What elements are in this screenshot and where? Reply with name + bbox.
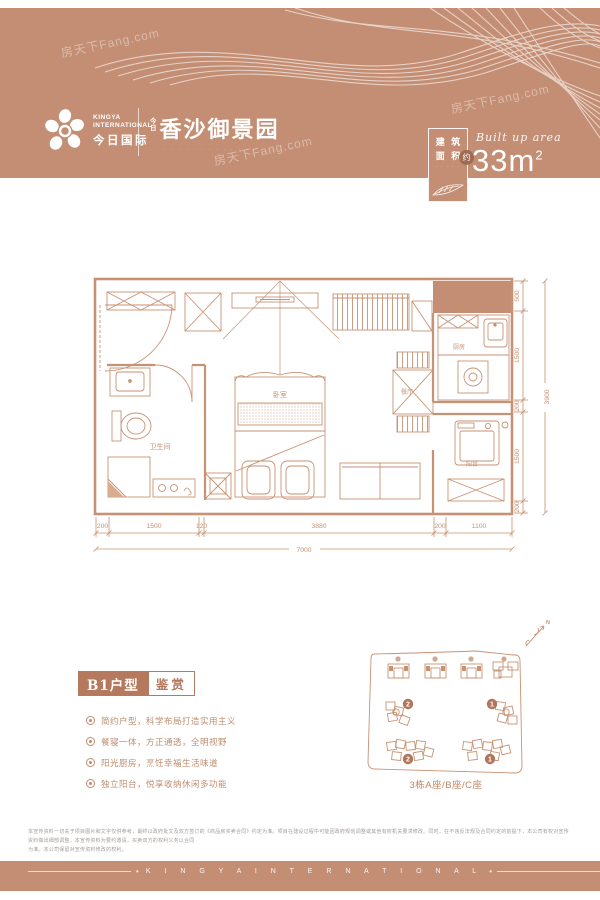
- footer-line-right: [497, 871, 600, 872]
- ceiling-lines: [223, 281, 339, 375]
- bathroom-walls: [107, 365, 205, 500]
- bullet-icon: [86, 716, 95, 725]
- chairs: [242, 461, 314, 499]
- site-buildings-top: [388, 656, 518, 678]
- feature-text: 独立阳台，悦享收纳休闲多功能: [101, 778, 227, 790]
- project-subtitle: · · · · · · · · · · · · · ·: [164, 147, 280, 152]
- ac-unit: [448, 479, 504, 501]
- dim-bottom-3: 120: [196, 523, 208, 530]
- siteplan-caption: 3栋A座/B座/C座: [409, 779, 482, 791]
- toilet-icon: [112, 411, 151, 441]
- north-arrow-icon: [526, 626, 544, 646]
- footer-band: • K I N G Y A I N T E R N A T I O N A L …: [0, 861, 600, 891]
- room-label-bedroom: 卧室: [273, 390, 287, 399]
- area-badge-dots: · · · · ·: [429, 164, 467, 169]
- feature-text: 阳光厨房，烹饪幸福生活味道: [101, 757, 218, 769]
- area-sup: 2: [535, 148, 543, 163]
- north-label: N: [546, 620, 550, 626]
- feature-item: 独立阳台，悦享收纳休闲多功能: [86, 773, 236, 794]
- feature-item: 餐寝一体，方正通透，全明视野: [86, 731, 236, 752]
- brand-name-cn: 今日国际: [93, 132, 152, 148]
- wardrobe: [333, 294, 432, 331]
- bullet-icon: [86, 737, 95, 746]
- building-badge-number: 1: [490, 702, 494, 709]
- flyer-page: KINGYA INTERNATIONAL 今日国际 今 日 香沙御景园 · · …: [0, 0, 600, 900]
- title-prefix-top: 今: [150, 118, 157, 125]
- entry-door: [100, 305, 172, 371]
- dim-bottom-5: 200: [434, 523, 446, 530]
- balcony-washer: [455, 421, 508, 465]
- footer-line-left: [28, 871, 131, 872]
- entry-closet: [107, 292, 221, 331]
- title-prefix-bottom: 日: [150, 125, 157, 132]
- feature-item: 阳光厨房，烹饪幸福生活味道: [86, 752, 236, 773]
- disclaimer-line1: 本宣传资料一切关于项目图片和文字仅供参考，最终以政府批文及双方签订的《商品房买卖…: [28, 828, 573, 846]
- feature-text: 简约户型，科学布局打造实用主义: [101, 715, 236, 727]
- bullet-icon: [86, 758, 95, 767]
- bullet-icon: [86, 779, 95, 788]
- building-badge-number: 2: [406, 757, 410, 764]
- building-badge-number: 2: [406, 702, 410, 709]
- unit-type-badge: B1户型 鉴赏: [78, 671, 195, 696]
- kitchen-walls: [433, 313, 512, 514]
- area-badge: 建 筑 面 积 · · · · · 约: [428, 128, 468, 202]
- bathroom-sink: [110, 368, 150, 396]
- feature-text: 餐寝一体，方正通透，全明视野: [101, 736, 227, 748]
- area-number: 33m: [472, 143, 535, 178]
- room-label-kitchen: 厨房: [453, 343, 465, 351]
- kitchen-counter: [438, 315, 509, 400]
- project-title: 香沙御景园: [160, 112, 280, 144]
- feature-item: 简约户型，科学布局打造实用主义: [86, 710, 236, 731]
- flower-logo-icon: [44, 108, 86, 154]
- dim-bottom-2: 1500: [146, 523, 161, 530]
- unit-type-suffix: 鉴赏: [148, 671, 195, 696]
- area-value: 33m2: [472, 143, 544, 179]
- dim-right-total: 3900: [544, 389, 551, 404]
- unit-type-label: B1户型: [78, 671, 148, 696]
- floorplan: 卫生间 卧室 餐厅 厨房 阳台 200 1500 120 3880 200 11…: [60, 265, 560, 565]
- footer-dot: •: [136, 867, 139, 876]
- building-badge-number: 1: [488, 757, 492, 764]
- brand-name-en-line1: KINGYA: [93, 114, 152, 122]
- dim-bottom-total: 7000: [296, 547, 311, 554]
- dim-right-2: 1500: [514, 348, 521, 363]
- logo-divider: [138, 108, 139, 156]
- dim-bottom-6: 1100: [472, 523, 487, 530]
- room-label-balcony: 阳台: [466, 460, 478, 468]
- dim-bottom-1: 200: [97, 523, 109, 530]
- area-char-1: 建: [436, 135, 445, 148]
- area-char-3: 面: [436, 149, 445, 162]
- room-label-dining: 餐厅: [401, 388, 413, 396]
- project-title-block: 今 日 香沙御景园 · · · · · · · · · · · · · ·: [150, 112, 280, 152]
- leaf-icon: [431, 179, 465, 199]
- dim-right-3: 200: [514, 400, 521, 412]
- footer-brand: K I N G Y A I N T E R N A T I O N A L: [144, 868, 484, 875]
- disclaimer-line2: 为准。本公司保留对宣传资料修改的权利。: [28, 846, 573, 855]
- room-label-bathroom: 卫生间: [150, 442, 171, 451]
- dim-bottom-4: 3880: [311, 523, 326, 530]
- shower-area: [108, 457, 195, 497]
- dim-right-1: 500: [514, 290, 521, 302]
- site-cluster-mid-right: [495, 701, 517, 724]
- feature-list: 简约户型，科学布局打造实用主义 餐寝一体，方正通透，全明视野 阳光厨房，烹饪幸福…: [86, 710, 236, 794]
- dim-right-4: 1500: [514, 449, 521, 464]
- siteplan: 2 1 2 1 N 3栋A座/B座/C座: [358, 612, 563, 802]
- floor-drain: [205, 473, 231, 499]
- dim-right-5: 200: [514, 501, 521, 513]
- title-prefix: 今 日: [150, 118, 157, 132]
- bathroom-door: [155, 365, 192, 402]
- area-char-2: 筑: [451, 135, 460, 148]
- brand-name-en-line2: INTERNATIONAL: [93, 122, 152, 130]
- solid-wall-block: [433, 281, 512, 313]
- bench: [340, 463, 420, 499]
- footer-dot: •: [489, 867, 492, 876]
- disclaimer: 本宣传资料一切关于项目图片和文字仅供参考，最终以政府批文及双方签订的《商品房买卖…: [28, 828, 573, 855]
